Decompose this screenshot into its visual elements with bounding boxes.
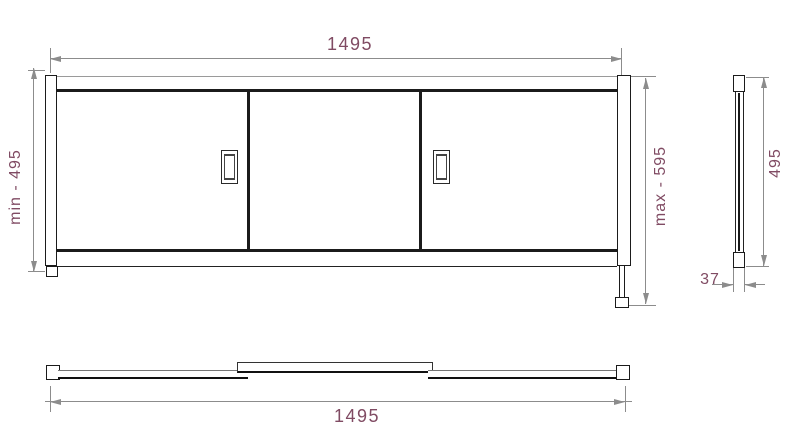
side-depth-ext-left bbox=[733, 268, 734, 292]
front-height-max-dimension-line bbox=[645, 78, 646, 304]
front-height-max-ext-bottom bbox=[629, 305, 656, 306]
front-height-min-arrow-bottom bbox=[31, 261, 37, 272]
door-panel-area bbox=[57, 92, 617, 252]
plan-width-arrow-right bbox=[614, 399, 625, 405]
side-height-arrow-bottom bbox=[761, 255, 767, 266]
front-height-min-arrow-top bbox=[31, 68, 37, 79]
door-handle-left-recess bbox=[224, 154, 235, 180]
door-handle-left bbox=[221, 150, 238, 184]
side-depth-arrow-left bbox=[722, 282, 733, 288]
plan-panel-middle bbox=[237, 362, 433, 373]
side-height-dimension-label: 495 bbox=[766, 133, 786, 193]
door-divider-1 bbox=[247, 92, 250, 252]
front-height-max-dimension-label: max - 595 bbox=[651, 121, 671, 251]
front-height-max-arrow-bottom bbox=[643, 293, 649, 304]
side-panel-strip-inner-line bbox=[738, 93, 740, 251]
plan-width-ext-right bbox=[625, 386, 626, 412]
side-bottom-cap bbox=[733, 252, 745, 268]
front-width-dimension-label: 1495 bbox=[300, 34, 400, 54]
plan-width-arrow-left bbox=[50, 399, 61, 405]
front-height-min-dimension-line bbox=[33, 68, 34, 272]
side-height-arrow-top bbox=[761, 77, 767, 88]
right-adjustable-leg bbox=[619, 266, 625, 297]
front-width-arrow-left bbox=[50, 56, 61, 62]
side-depth-ext-right bbox=[744, 268, 745, 292]
plan-width-dimension-label: 1495 bbox=[307, 406, 407, 426]
left-foot bbox=[46, 266, 58, 277]
front-height-min-dimension-label: min - 495 bbox=[6, 128, 26, 246]
frame-top-rail bbox=[57, 76, 617, 92]
door-handle-right-recess bbox=[436, 154, 447, 180]
side-depth-dimension-label: 37 bbox=[697, 270, 723, 290]
side-top-cap bbox=[733, 75, 745, 92]
plan-panel-right bbox=[428, 370, 618, 379]
front-height-max-ext-top bbox=[631, 76, 656, 77]
door-handle-right bbox=[433, 150, 450, 184]
front-width-ext-line-right bbox=[621, 48, 622, 75]
side-depth-arrow-right bbox=[745, 282, 756, 288]
frame-bottom-rail bbox=[57, 252, 617, 267]
front-width-dimension-line bbox=[50, 58, 622, 59]
right-foot bbox=[615, 297, 629, 308]
technical-drawing: 1495 min - 495 max - 595 bbox=[0, 0, 800, 434]
side-height-dimension-line bbox=[763, 77, 764, 266]
front-height-max-arrow-top bbox=[643, 78, 649, 89]
plan-right-endcap bbox=[616, 365, 630, 380]
plan-width-dimension-line bbox=[45, 401, 632, 402]
plan-panel-left bbox=[58, 370, 248, 379]
door-divider-2 bbox=[419, 92, 422, 252]
frame-left-post bbox=[45, 75, 57, 266]
front-width-arrow-right bbox=[611, 56, 622, 62]
frame-right-post bbox=[617, 75, 631, 266]
